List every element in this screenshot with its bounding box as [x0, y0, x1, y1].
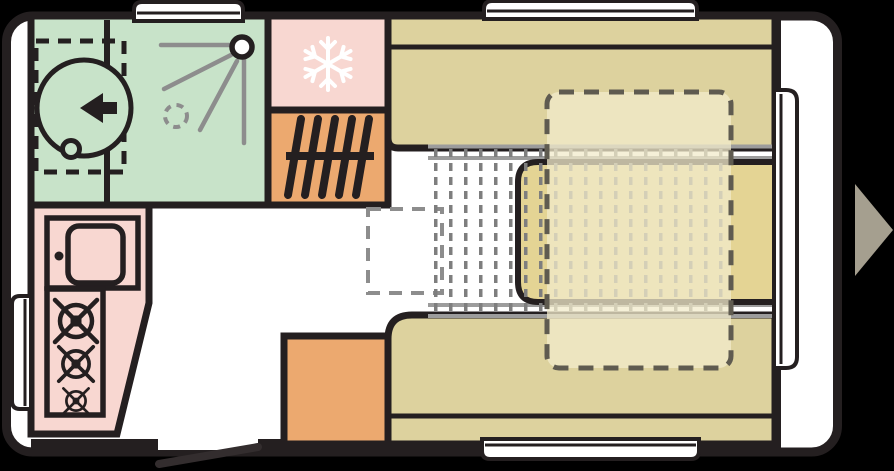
front-window	[774, 90, 797, 368]
faucet-dot	[55, 252, 64, 261]
fridge	[268, 16, 388, 110]
heater	[268, 110, 388, 205]
sink-icon	[68, 226, 123, 283]
burner-icon	[55, 300, 97, 342]
caravan-floor-plan	[0, 0, 894, 471]
bed-made-up-overlay	[547, 92, 731, 368]
burner-icon	[59, 347, 93, 381]
bathroom	[31, 16, 268, 205]
shower-head-icon	[232, 37, 252, 57]
window-bottom	[482, 439, 699, 459]
bottom-wall-left-segment	[31, 439, 158, 449]
toilet-flush-knob	[63, 141, 80, 158]
window-left	[12, 296, 31, 409]
burner-icon	[63, 388, 88, 413]
wardrobe	[284, 336, 388, 444]
floor-plan-canvas	[0, 0, 894, 471]
